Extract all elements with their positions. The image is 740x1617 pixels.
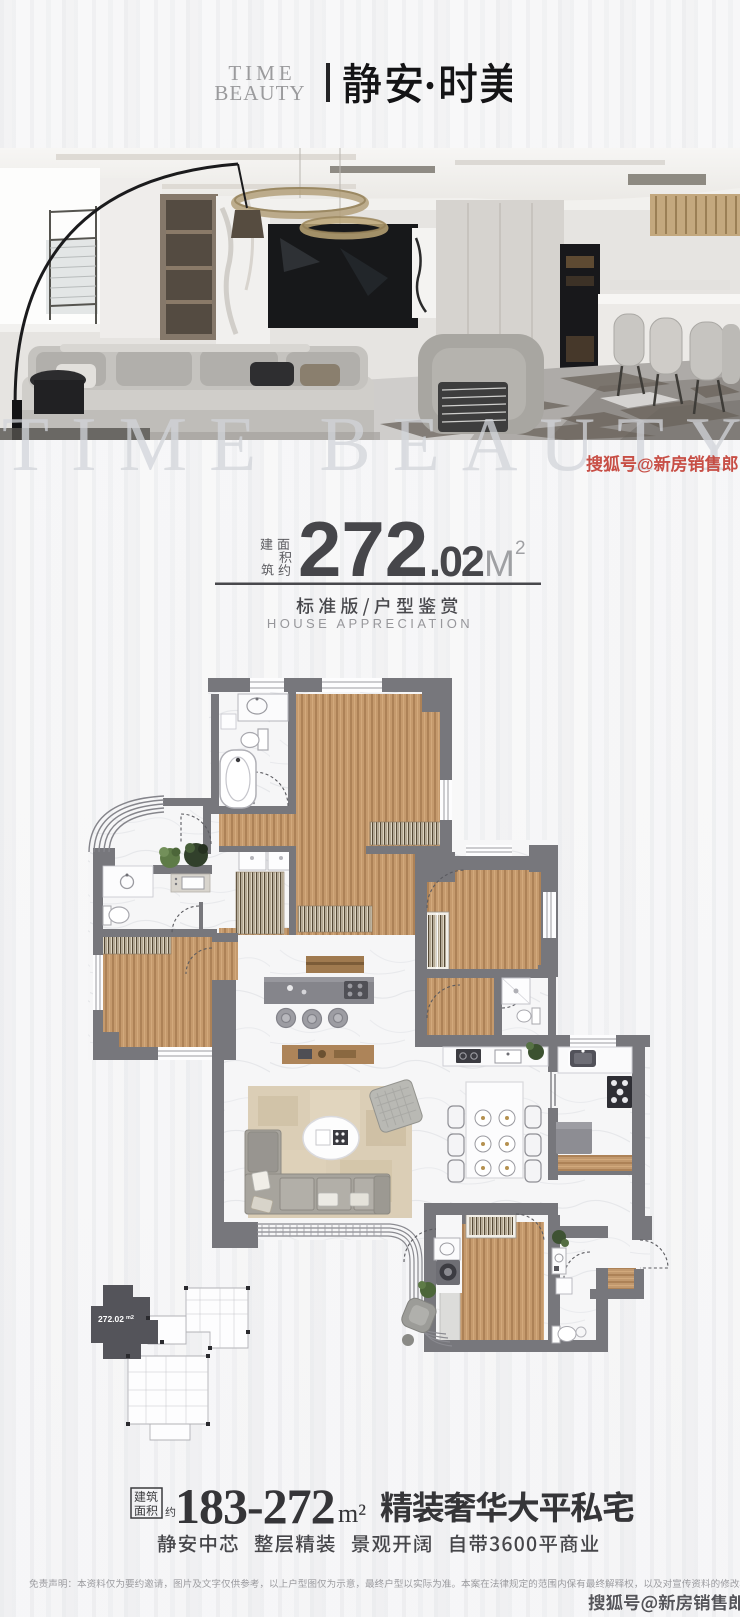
- svg-text:183-272: 183-272: [175, 1478, 335, 1534]
- svg-text:M: M: [484, 543, 515, 584]
- svg-text:272: 272: [298, 505, 428, 593]
- svg-text:m2: m2: [126, 1315, 134, 1321]
- svg-text:2: 2: [515, 538, 526, 559]
- svg-text:.02: .02: [429, 538, 484, 586]
- svg-text:HOUSE APPRECIATION: HOUSE APPRECIATION: [267, 616, 473, 631]
- svg-text:272.02: 272.02: [98, 1314, 124, 1324]
- svg-text:m²: m²: [338, 1499, 366, 1528]
